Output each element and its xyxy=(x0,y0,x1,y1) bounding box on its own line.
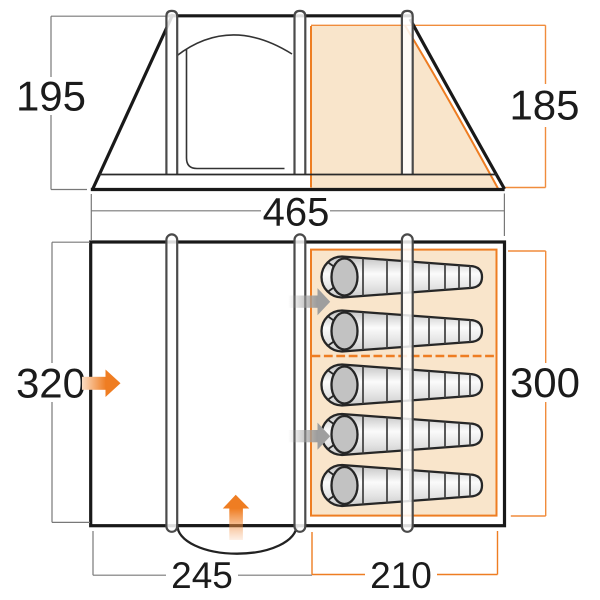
svg-text:300: 300 xyxy=(510,359,580,406)
svg-text:245: 245 xyxy=(171,555,233,596)
svg-text:195: 195 xyxy=(16,73,86,120)
svg-text:465: 465 xyxy=(263,191,330,235)
svg-text:185: 185 xyxy=(509,82,579,129)
svg-text:320: 320 xyxy=(16,360,86,407)
svg-text:210: 210 xyxy=(370,555,432,596)
